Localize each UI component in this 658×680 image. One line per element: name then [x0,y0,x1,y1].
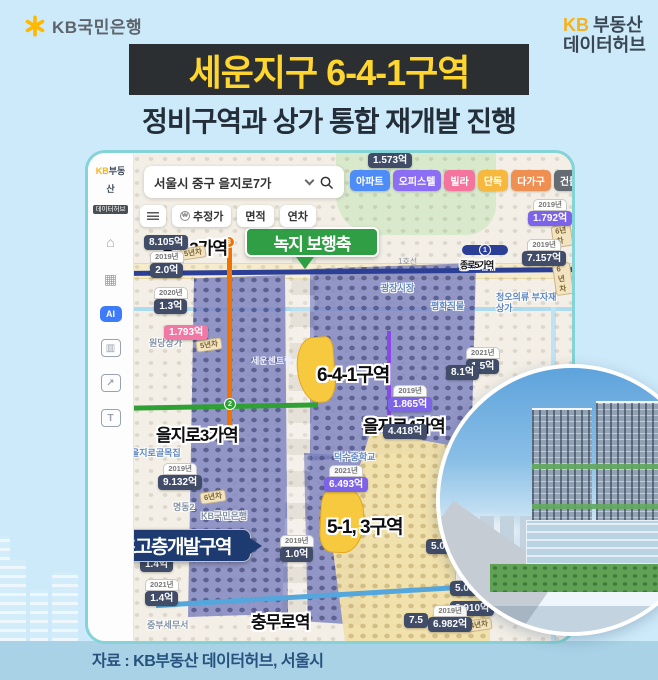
price-marker[interactable]: 2019년9.132억 [158,463,202,490]
category-chip-row: 아파트 오피스텔 빌라 단독 다가구 건물 토지 [350,170,575,191]
line1-bullet: 1 [479,244,491,256]
ai-badge[interactable]: AI [100,306,122,322]
filter-estimate[interactable]: ₩추정가 [172,205,231,227]
chip-officetel[interactable]: 오피스텔 [393,170,442,191]
search-bar[interactable] [144,166,344,198]
station-label-jongro5: 종로5가역 [460,258,493,271]
land-icon[interactable]: T [101,409,121,427]
filter-sliders-icon[interactable] [140,205,166,227]
place-label: 명동2 [173,500,195,513]
title-banner: 세운지구 6-4-1구역 [129,44,529,95]
place-label: 덕수중학교 [334,450,375,463]
place-label: 평화직물 [431,299,464,312]
inset-park [490,564,658,592]
bank-logo: KB국민은행 [24,13,142,38]
price-marker[interactable]: 2019년7.157억 [522,239,566,266]
green-axis-badge: 녹지 보행축 [245,227,379,257]
price-marker[interactable]: 2019년1.865억 [388,385,432,412]
place-label: 광장시장 [381,281,414,294]
chip-building[interactable]: 건물 [554,170,575,191]
bar-chart-icon[interactable]: ▥ [101,339,121,357]
inset-green-terrace [532,464,658,469]
price-marker[interactable]: 8.105억 [144,235,188,250]
price-marker[interactable]: 1.573억 [368,153,412,168]
price-marker[interactable]: 2019년2.0억 [150,251,184,278]
trend-icon[interactable]: ↗ [101,374,121,392]
chip-villa[interactable]: 빌라 [444,170,474,191]
sidebar-logo: KB부동산 데이터허브 [92,161,129,216]
line1-label: 1호선 [398,256,417,267]
place-label: KB국민은행 [201,509,247,522]
buildings-icon[interactable]: ▦ [100,269,122,289]
chip-apartment[interactable]: 아파트 [350,170,390,191]
hub-logo-kb: KB [563,15,589,35]
green-axis-badge-pointer [296,257,314,269]
price-marker[interactable]: 4.418억 [383,424,427,439]
search-icon[interactable] [319,175,334,190]
filter-age[interactable]: 연차 [280,205,316,227]
hub-logo-line1: 부동산 [593,15,643,35]
chip-detached[interactable]: 단독 [478,170,508,191]
chip-multi-family[interactable]: 다가구 [511,170,551,191]
map-sidebar: KB부동산 데이터허브 ⌂ ▦ AI ▥ ↗ T [88,153,134,641]
city-silhouette-building [30,590,48,641]
filter-area[interactable]: 면적 [237,205,273,227]
page-title: 세운지구 6-4-1구역 [189,44,470,96]
tower-rendering-inset [436,364,658,636]
place-label: 중부세무서 [147,618,188,631]
page-subtitle: 정비구역과 상가 통합 재개발 진행 [0,100,658,140]
zone-label-513: 5-1, 3구역 [327,512,403,539]
station-label-chungmuro: 충무로역 [251,608,310,633]
hub-logo: KB부동산 데이터허브 [563,16,646,56]
city-silhouette-building [52,572,78,641]
place-label: 을지로골목집 [131,446,181,459]
search-input[interactable] [154,175,300,189]
hub-logo-line2: 데이터허브 [563,36,646,56]
price-marker[interactable]: 2019년1.0억 [280,535,314,562]
source-text: 자료 : KB부동산 데이터허브, 서울시 [92,647,324,671]
place-label: 청오의류 부자재상가 [496,292,558,314]
inset-glass-podium [526,520,658,566]
station-label-euljiro3: 을지로3가역 [156,421,238,446]
highrise-zone-badge-pointer [250,538,262,554]
bank-brand-text: KB국민은행 [52,13,142,38]
infographic-page: { "header": { "bank_brand": "KB국민은행", "h… [0,0,658,680]
chevron-down-icon[interactable] [305,175,315,185]
store-icon[interactable]: ⌂ [100,232,122,252]
price-marker[interactable]: 2019년1.792억 [528,199,572,226]
price-marker[interactable]: 2021년1.4억 [145,579,179,606]
price-marker[interactable]: 2021년6.493억 [324,465,368,492]
price-marker[interactable]: 1.793억 [164,325,208,340]
line2-bullet: 2 [224,398,236,410]
city-silhouette-building [2,560,26,641]
price-marker[interactable]: 7.5 [404,613,428,628]
kb-star-icon [24,15,46,37]
inset-green-terrace [532,504,658,509]
place-label: 세운센트럴 [251,354,292,367]
won-icon: ₩ [180,211,190,221]
inset-foreground [440,606,658,632]
sub-filter-row: ₩추정가 면적 연차 [140,205,316,227]
price-marker[interactable]: 2020년1.3억 [154,287,188,314]
zone-label-641: 6-4-1구역 [317,360,389,387]
